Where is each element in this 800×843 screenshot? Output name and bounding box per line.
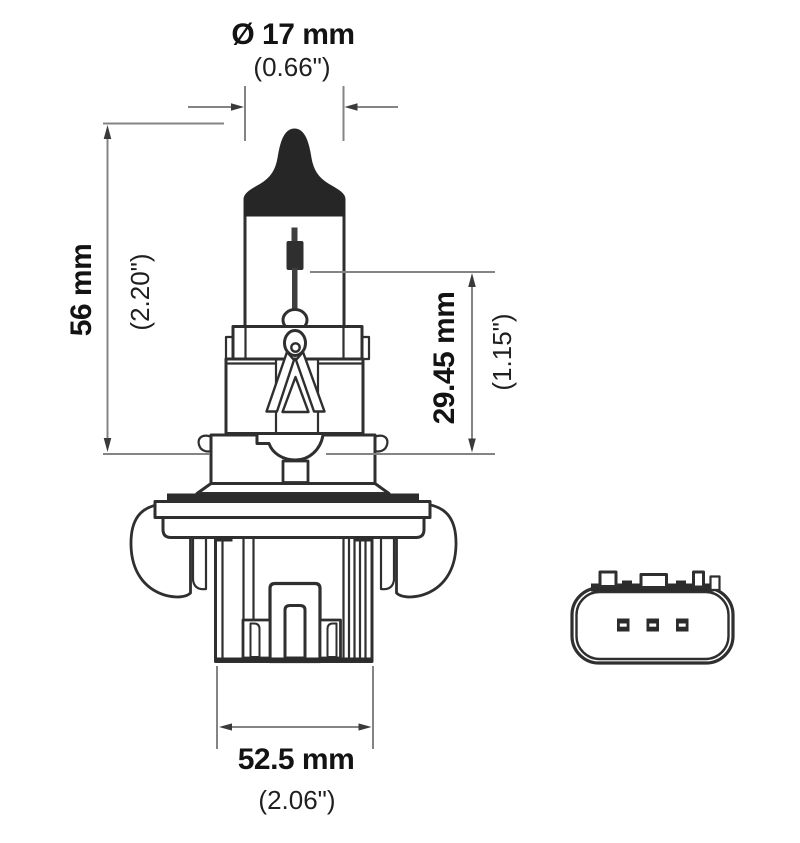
- seat-in-label: (1.15"): [487, 313, 517, 390]
- bulb-technical-diagram: Ø 17 mm (0.66") 56 mm (2.20") 29.45 mm (…: [0, 0, 800, 843]
- terminal-pin-3: [676, 619, 689, 632]
- bulb-side-view: [131, 130, 456, 662]
- width-in-label: (2.06"): [258, 785, 335, 815]
- dimension-overall-length: 56 mm (2.20"): [65, 124, 224, 455]
- connector-face-view: [572, 572, 733, 663]
- length-mm-label: 56 mm: [65, 244, 98, 337]
- terminal-pin-1: [617, 619, 630, 632]
- dimension-base-width: 52.5 mm (2.06"): [217, 666, 373, 815]
- filament-lead-top: [292, 228, 298, 243]
- collar-tab: [283, 461, 308, 483]
- length-in-label: (2.20"): [125, 253, 155, 330]
- black-tip: [245, 130, 344, 216]
- terminal-pin-2: [647, 619, 660, 632]
- seat-mm-label: 29.45 mm: [428, 292, 461, 425]
- filament-coil: [287, 241, 304, 270]
- width-mm-label: 52.5 mm: [238, 743, 355, 776]
- diameter-in-label: (0.66"): [253, 52, 330, 82]
- diagram-canvas: Ø 17 mm (0.66") 56 mm (2.20") 29.45 mm (…: [0, 0, 800, 843]
- collar-chamfer: [197, 484, 389, 494]
- connector-center-slot: [285, 606, 305, 659]
- base-collar: [197, 435, 389, 494]
- filament-lead-bottom: [292, 268, 298, 310]
- diameter-mm-label: Ø 17 mm: [231, 18, 354, 51]
- mounting-flange: [155, 502, 430, 538]
- connector-housing: [216, 537, 373, 662]
